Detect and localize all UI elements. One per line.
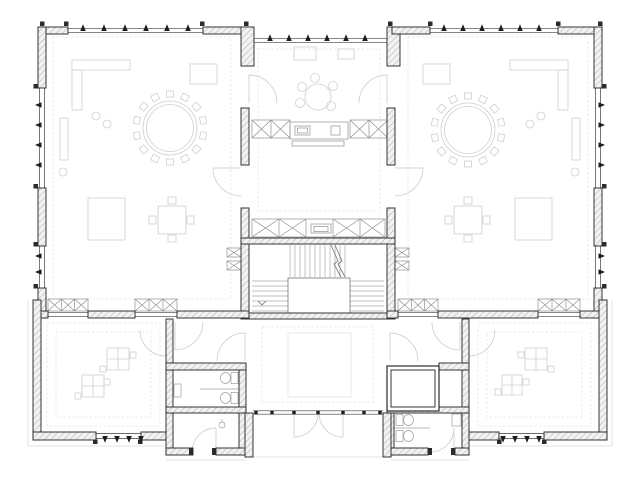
door-jamb	[451, 448, 455, 455]
vestibule-wall	[462, 319, 469, 363]
wc-wall	[439, 363, 469, 370]
drawing-page	[0, 0, 640, 480]
wc-wall	[166, 363, 246, 370]
porch-wall	[245, 413, 253, 457]
door-jamb	[428, 448, 432, 455]
door-jamb	[212, 448, 216, 455]
wall-pier	[392, 27, 430, 34]
wall-pier	[203, 27, 247, 34]
wall-mid-band	[387, 311, 398, 318]
wall-pier	[38, 27, 46, 88]
wall-mid-band	[88, 311, 135, 318]
wc-wall	[216, 448, 246, 455]
wc-wall	[166, 407, 246, 413]
stair-landing	[288, 278, 350, 314]
wall-pier	[387, 108, 395, 165]
wing-wall	[544, 432, 607, 440]
wc-wall	[455, 448, 469, 455]
porch-wall	[383, 413, 391, 457]
door-jamb	[189, 448, 193, 455]
wing-wall	[33, 300, 41, 440]
wall-pier	[594, 188, 602, 246]
wall-mid-band	[177, 311, 249, 318]
vestibule-wall	[166, 319, 173, 363]
elevator-shaft	[387, 366, 439, 411]
wall-mid-band	[438, 311, 538, 318]
stair-hall-wall	[241, 238, 249, 319]
stair-hall-wall	[387, 238, 395, 319]
floor-plan-canvas	[0, 0, 640, 480]
wall-pier	[38, 188, 46, 246]
wall-mid-band	[249, 313, 387, 319]
wc-wall	[166, 448, 193, 455]
wing-wall	[599, 300, 607, 440]
wall-pier	[241, 27, 254, 66]
wc-wall	[387, 448, 428, 455]
wing-wall	[33, 432, 96, 440]
wall-pier	[594, 27, 602, 88]
wing-wall	[467, 432, 499, 440]
wall-pier	[241, 108, 249, 165]
stair-hall-wall	[241, 238, 395, 244]
